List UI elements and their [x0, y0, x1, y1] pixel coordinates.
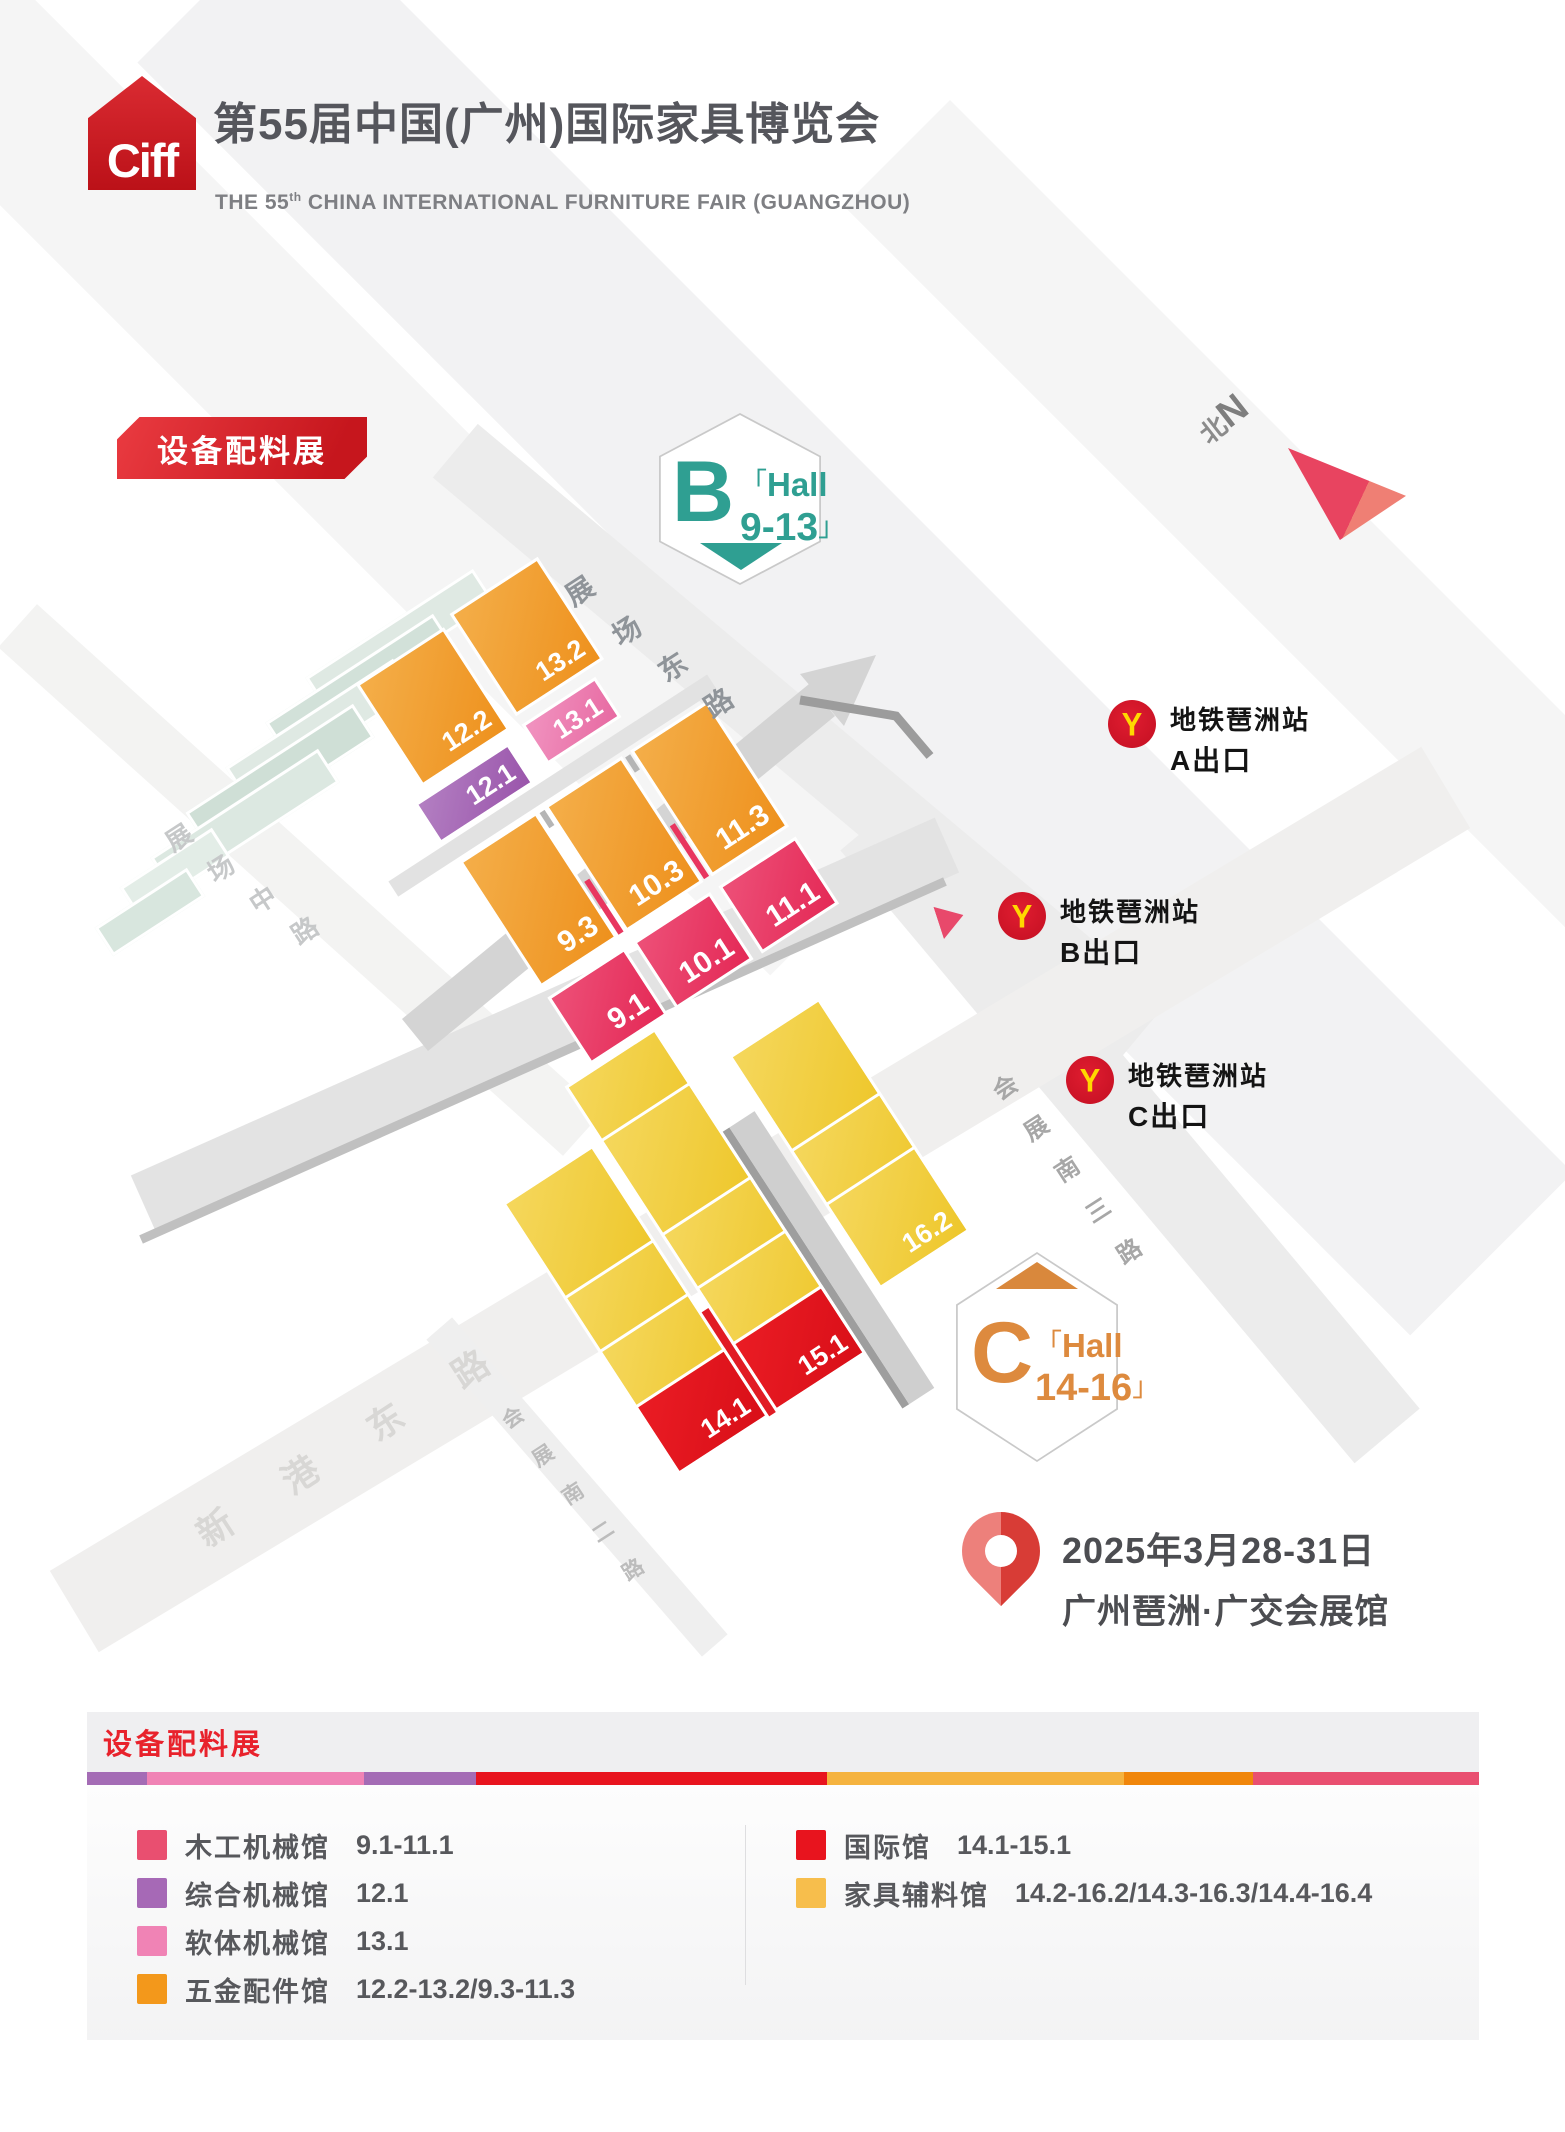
metro-icon: Y	[1108, 700, 1156, 748]
page-title: 第55届中国(广州)国际家具博览会	[213, 88, 880, 152]
legend-title: 设备配料展	[87, 1721, 263, 1763]
legend-label: 五金配件馆	[185, 1970, 330, 2009]
legend: 设备配料展 木工机械馆 9.1-11.1 综合机械馆 12.1 软体机械馆	[87, 1712, 1479, 2040]
legend-row: 综合机械馆 12.1	[137, 1869, 575, 1917]
metro-logo-glyph: Y	[1080, 1064, 1101, 1097]
hall-word: Hall	[1062, 1327, 1123, 1364]
metro-exit-name: C出口	[1128, 1095, 1268, 1135]
header: Ciff 第55届中国(广州)国际家具博览会 THE 55th CHINA IN…	[0, 0, 1565, 260]
legend-swatch	[796, 1878, 826, 1908]
expo-badge: 设备配料展	[117, 417, 367, 479]
metro-logo-glyph: Y	[1122, 708, 1143, 741]
stripe-seg	[1253, 1772, 1479, 1785]
metro-station-name: 地铁琶洲站	[1128, 1056, 1268, 1093]
expo-badge-label: 设备配料展	[157, 426, 327, 471]
stripe-seg	[1124, 1772, 1253, 1785]
hall-badge-b-lines: 「Hall 9-13」	[740, 465, 845, 550]
legend-row: 木工机械馆 9.1-11.1	[137, 1821, 575, 1869]
legend-row: 五金配件馆 12.2-13.2/9.3-11.3	[137, 1965, 575, 2013]
subtitle-post: CHINA INTERNATIONAL FURNITURE FAIR (GUAN…	[302, 191, 911, 214]
hall-range: 9-13	[740, 506, 818, 549]
legend-row: 国际馆 14.1-15.1	[796, 1821, 1372, 1869]
stripe-seg	[147, 1772, 364, 1785]
bracket-open: 「	[740, 468, 767, 498]
subtitle-sup: th	[289, 190, 301, 204]
ciff-logo-text: Ciff	[107, 137, 177, 190]
subtitle-pre: THE 55	[215, 191, 289, 214]
hall-badge-b-letter: B	[672, 449, 734, 535]
legend-stripe	[87, 1772, 1479, 1785]
page-subtitle: THE 55th CHINA INTERNATIONAL FURNITURE F…	[215, 190, 910, 215]
legend-col-right: 国际馆 14.1-15.1 家具辅料馆 14.2-16.2/14.3-16.3/…	[796, 1821, 1372, 1917]
metro-exit-b: Y 地铁琶洲站 B出口	[998, 892, 1200, 971]
legend-label: 家具辅料馆	[844, 1874, 989, 1913]
date-block: 2025年3月28-31日 广州琶洲·广交会展馆	[1062, 1522, 1389, 1633]
legend-range: 14.1-15.1	[957, 1830, 1071, 1861]
hall-word: Hall	[767, 466, 828, 503]
hall-badge-c-lines: 「Hall 14-16」	[1035, 1326, 1159, 1410]
metro-station-name: 地铁琶洲站	[1170, 700, 1310, 737]
bracket-open: 「	[1035, 1329, 1062, 1359]
legend-row: 家具辅料馆 14.2-16.2/14.3-16.3/14.4-16.4	[796, 1869, 1372, 1917]
metro-text: 地铁琶洲站 B出口	[1060, 892, 1200, 971]
hall-range: 14-16	[1035, 1367, 1132, 1409]
stripe-seg	[476, 1772, 827, 1785]
legend-range: 9.1-11.1	[356, 1830, 454, 1861]
legend-swatch	[796, 1830, 826, 1860]
legend-divider	[745, 1825, 746, 1985]
legend-swatch	[137, 1830, 167, 1860]
metro-station-name: 地铁琶洲站	[1060, 892, 1200, 929]
legend-range: 12.1	[356, 1878, 409, 1909]
legend-swatch	[137, 1926, 167, 1956]
metro-text: 地铁琶洲站 A出口	[1170, 700, 1310, 779]
legend-range: 12.2-13.2/9.3-11.3	[356, 1974, 575, 2005]
metro-exit-c: Y 地铁琶洲站 C出口	[1066, 1056, 1268, 1135]
metro-exit-a: Y 地铁琶洲站 A出口	[1108, 700, 1310, 779]
legend-body: 木工机械馆 9.1-11.1 综合机械馆 12.1 软体机械馆 13.1 五金配…	[87, 1785, 1479, 2040]
event-venue: 广州琶洲·广交会展馆	[1062, 1584, 1389, 1633]
legend-swatch	[137, 1878, 167, 1908]
metro-exit-name: B出口	[1060, 931, 1200, 971]
pin-hole	[978, 1528, 1023, 1573]
bracket-close: 」	[818, 512, 845, 542]
metro-text: 地铁琶洲站 C出口	[1128, 1056, 1268, 1135]
stripe-seg	[87, 1772, 147, 1785]
legend-label: 国际馆	[844, 1826, 931, 1865]
metro-icon: Y	[1066, 1056, 1114, 1104]
metro-icon: Y	[998, 892, 1046, 940]
page: { "header": { "logo_text": "Ciff", "titl…	[0, 0, 1565, 2132]
legend-label: 综合机械馆	[185, 1874, 330, 1913]
legend-col-left: 木工机械馆 9.1-11.1 综合机械馆 12.1 软体机械馆 13.1 五金配…	[137, 1821, 575, 2013]
legend-row: 软体机械馆 13.1	[137, 1917, 575, 1965]
legend-label: 软体机械馆	[185, 1922, 330, 1961]
metro-exit-name: A出口	[1170, 739, 1310, 779]
metro-logo-glyph: Y	[1012, 900, 1033, 933]
stripe-seg	[364, 1772, 476, 1785]
legend-header: 设备配料展	[87, 1712, 1479, 1772]
hall-badge-c-letter: C	[971, 1310, 1033, 1396]
legend-range: 13.1	[356, 1926, 409, 1957]
legend-range: 14.2-16.2/14.3-16.3/14.4-16.4	[1015, 1878, 1372, 1909]
event-dates: 2025年3月28-31日	[1062, 1522, 1389, 1574]
bracket-close: 」	[1132, 1372, 1159, 1402]
legend-label: 木工机械馆	[185, 1826, 330, 1865]
ciff-logo: Ciff	[88, 76, 196, 190]
legend-swatch	[137, 1974, 167, 2004]
stripe-seg	[827, 1772, 1124, 1785]
